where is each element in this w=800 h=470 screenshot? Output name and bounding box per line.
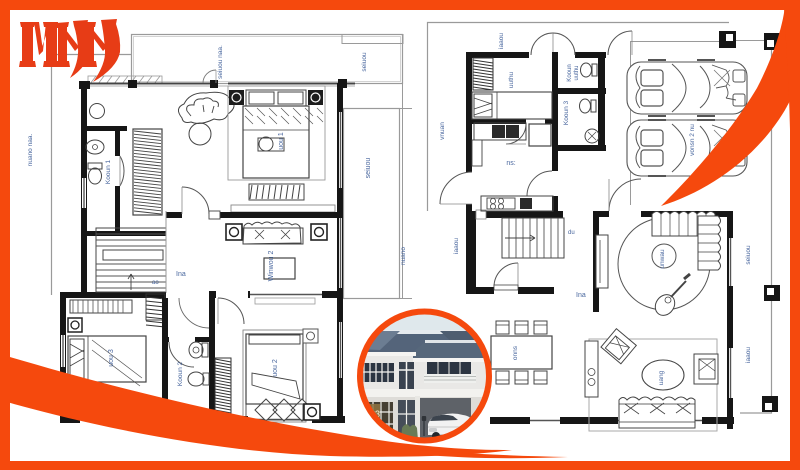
svg-text:seiuou: seiuou: [361, 52, 368, 72]
svg-text:onns: onns: [512, 345, 519, 360]
svg-text:nuano naa.: nuano naa.: [27, 134, 34, 167]
svg-text:iaaou: iaaou: [453, 238, 460, 254]
svg-text:vonsn 2 nu: vonsn 2 nu: [689, 124, 696, 156]
svg-text:ns:: ns:: [506, 160, 515, 167]
svg-text:Kooun 1: Kooun 1: [105, 160, 112, 185]
svg-text:seiuou naa.: seiuou naa.: [217, 45, 224, 79]
svg-text:Winwou 2: Winwou 2: [268, 251, 275, 282]
svg-text:Ina: Ina: [576, 292, 586, 299]
svg-text:iaaou: iaaou: [745, 347, 752, 363]
svg-text:seiuou: seiuou: [365, 158, 372, 179]
svg-text:seiuou: seiuou: [745, 245, 752, 265]
svg-text:Kooun 2: Kooun 2: [177, 362, 184, 387]
svg-text:uou 1: uou 1: [278, 132, 285, 150]
svg-text:ao: ao: [152, 280, 159, 286]
svg-text:uuthu: uuthu: [508, 71, 515, 88]
svg-text:unwau: unwau: [659, 249, 666, 269]
svg-text:uou 2: uou 2: [272, 359, 279, 377]
svg-text:iaaou: iaaou: [498, 33, 505, 49]
svg-text:Kooun: Kooun: [567, 64, 573, 81]
svg-text:nuano: nuano: [400, 247, 407, 265]
svg-text:vnuan: vnuan: [439, 122, 446, 140]
svg-text:uang: uang: [658, 370, 665, 385]
svg-text:uou 3: uou 3: [108, 349, 115, 367]
svg-text:du: du: [568, 230, 575, 236]
svg-text:uuthu: uuthu: [574, 65, 580, 80]
svg-text:Ina: Ina: [176, 271, 186, 278]
svg-text:Kooun 3: Kooun 3: [563, 101, 570, 126]
